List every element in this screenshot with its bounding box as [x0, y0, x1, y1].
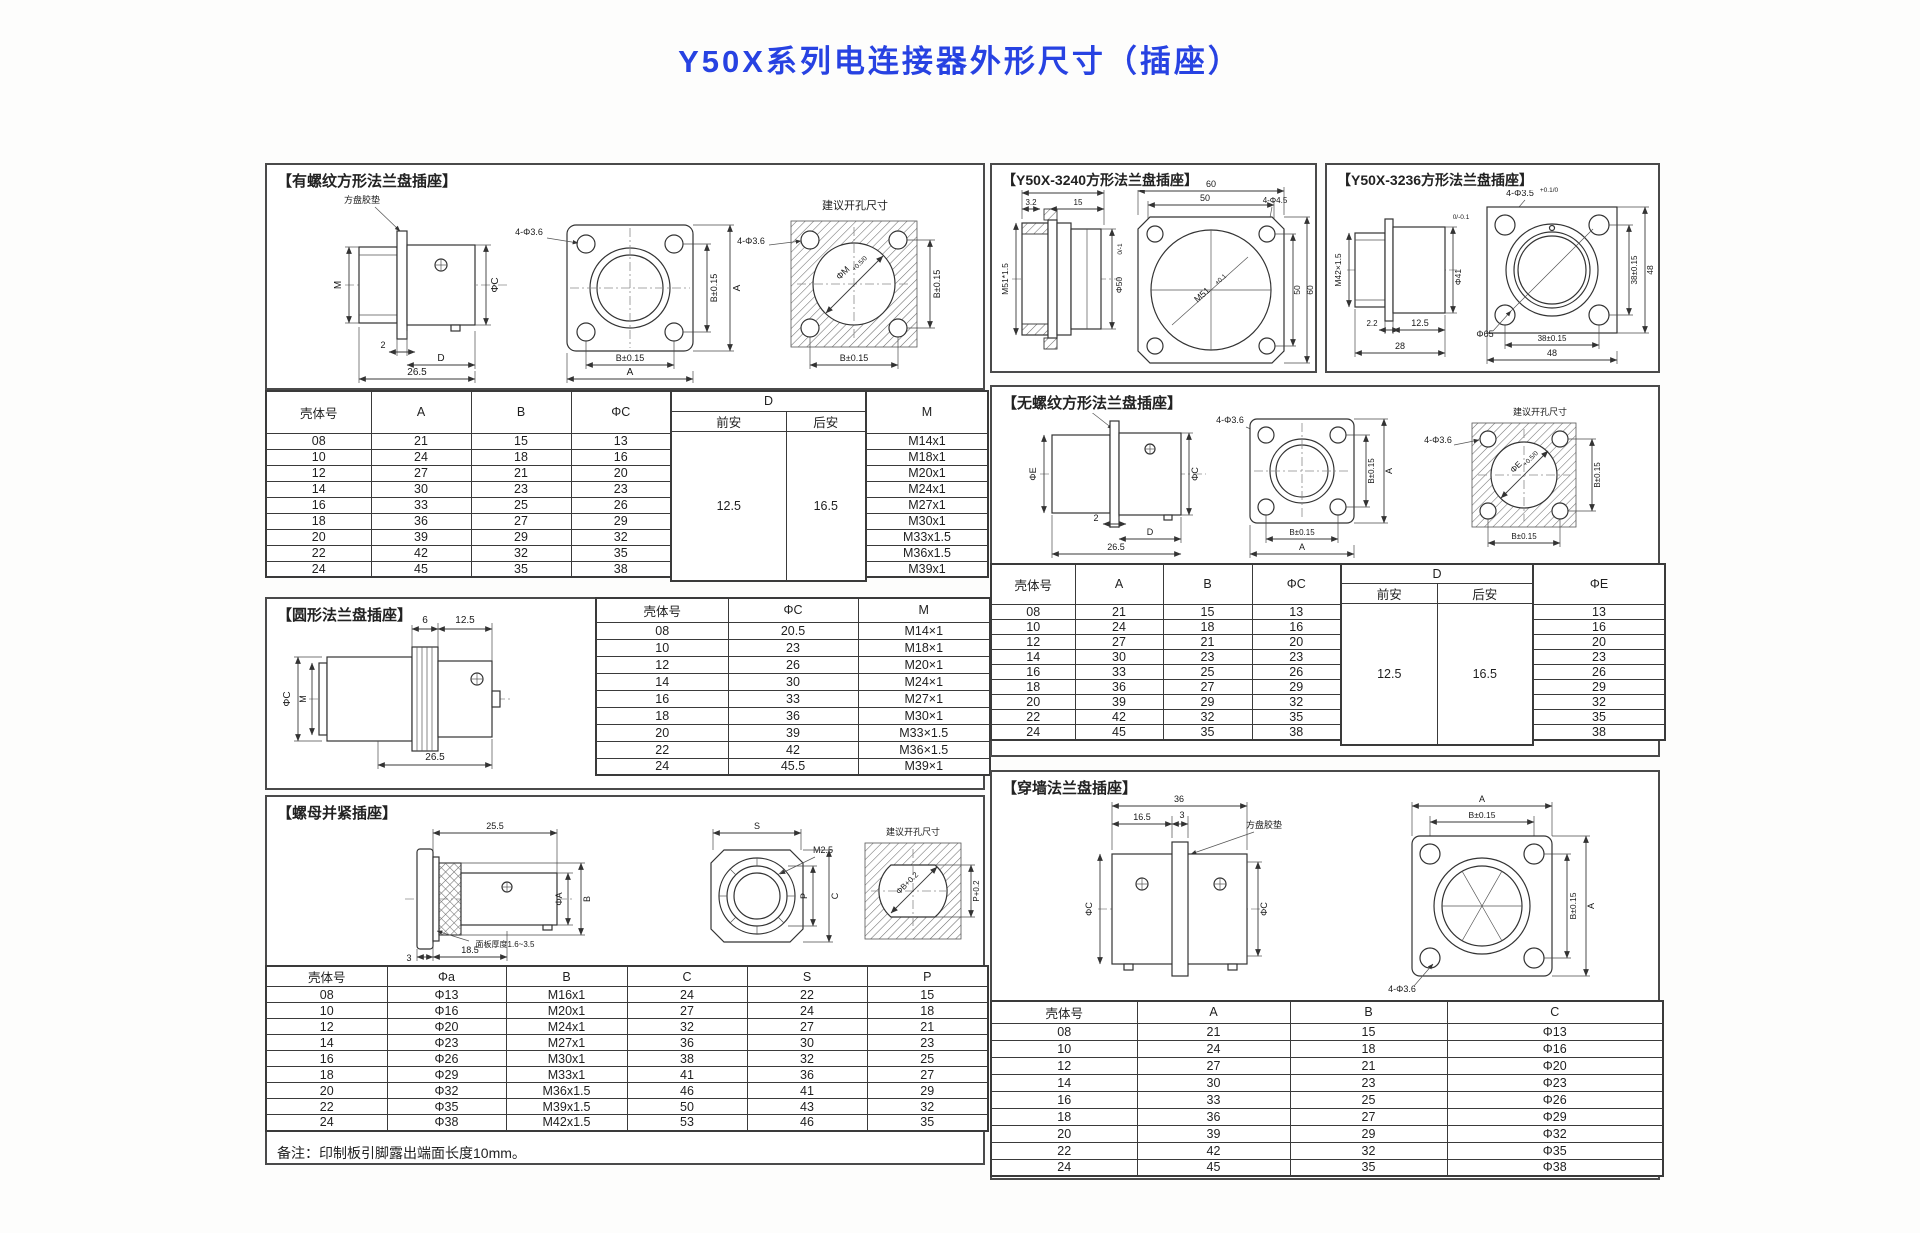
table-row: 24453538 — [266, 561, 671, 577]
dim-36: 36 — [1174, 794, 1184, 804]
table-cell: Φ32 — [387, 1083, 506, 1099]
threaded-drawing: 方盘胶垫 M ΦC 2 D 26.5 — [267, 165, 983, 388]
dim-28: 28 — [1395, 341, 1405, 351]
table-cell: M16x1 — [506, 987, 627, 1003]
table-cell: Φ26 — [1447, 1091, 1663, 1108]
table-cell: 22 — [747, 987, 867, 1003]
table-cell: 33 — [1137, 1091, 1290, 1108]
dim-a-top: A — [1479, 794, 1485, 804]
table-row: 08211513 — [991, 604, 1341, 619]
table-cell: 16 — [1252, 619, 1341, 634]
column-header: D — [671, 391, 866, 411]
dim-b2: B±0.15 — [616, 353, 644, 363]
table-cell: 23 — [867, 1035, 988, 1051]
table-cell: 32 — [867, 1099, 988, 1115]
table-cell: 10 — [596, 639, 728, 656]
table-row: 18362729 — [266, 513, 671, 529]
dim-m: M — [333, 281, 344, 289]
table-cell: 21 — [471, 465, 571, 481]
table-row: 20 — [1533, 634, 1665, 649]
table-row: 16332526 — [991, 664, 1341, 679]
dim-a: A — [732, 284, 743, 291]
dim-2: 2 — [1093, 513, 1098, 523]
table-cell: 22 — [991, 709, 1075, 724]
column-header: M — [858, 598, 990, 622]
throughwall-front-view: A B±0.15 4-Φ3.6 B±0.15 A — [1388, 794, 1596, 994]
dim-c: C — [830, 892, 840, 899]
table-cell: 24 — [371, 449, 471, 465]
dim-6: 6 — [422, 615, 428, 626]
table-cell: M33x1.5 — [866, 529, 988, 545]
table-cell: 23 — [571, 481, 671, 497]
table-cell: 24 — [991, 1159, 1137, 1176]
table-cell: 32 — [1290, 1142, 1447, 1159]
table-cell: M36x1.5 — [866, 545, 988, 561]
table-row: 13 — [1533, 604, 1665, 619]
table-cell: 30 — [1075, 649, 1163, 664]
unthreaded-table: 壳体号 A B ΦC 08211513102418161227212014302… — [990, 563, 1662, 746]
table-row: 14302323 — [266, 481, 671, 497]
dim-26-5: 26.5 — [1107, 542, 1125, 552]
table-cell: 16 — [266, 1051, 387, 1067]
table-cell: 38 — [571, 561, 671, 577]
table-row: 1633M27×1 — [596, 690, 990, 707]
table-cell: 41 — [747, 1083, 867, 1099]
table-cell: 15 — [471, 433, 571, 449]
panel-circular-flange: 【圆形法兰盘插座】 6 12.5 ΦC M 26.5 壳体号 — [265, 597, 985, 790]
panel-title: 【螺母并紧插座】 — [275, 802, 399, 823]
panel-y50x-3236: 【Y50X-3236方形法兰盘插座】 M42×1.5 Φ41 0/-0.1 2.… — [1325, 163, 1660, 373]
column-header: ΦE — [1533, 564, 1665, 604]
table-cell: 13 — [1252, 604, 1341, 619]
dim-12-5: 12.5 — [455, 615, 475, 626]
dim-a2: A — [627, 367, 634, 378]
y3236-drawing: M42×1.5 Φ41 0/-0.1 2.2 12.5 28 4-Φ3.5 +0… — [1327, 165, 1658, 371]
table-cell: 39 — [1075, 694, 1163, 709]
table-cell: M30x1 — [866, 513, 988, 529]
dim-15: 15 — [1074, 198, 1083, 207]
table-cell: 12 — [596, 656, 728, 673]
table-cell: 16.5 — [1437, 603, 1533, 745]
table-cell: 29 — [867, 1083, 988, 1099]
table-cell: Φ13 — [1447, 1023, 1663, 1040]
table-cell: 14 — [266, 481, 371, 497]
table-cell: M36x1.5 — [506, 1083, 627, 1099]
table-cell: 21 — [1075, 604, 1163, 619]
table-row: 10241816 — [991, 619, 1341, 634]
table-cell: Φ35 — [1447, 1142, 1663, 1159]
table-cell: 32 — [571, 529, 671, 545]
table-cell: 53 — [627, 1115, 747, 1131]
circular-drawing: 6 12.5 ΦC M 26.5 — [267, 599, 591, 788]
table-cell: 18 — [471, 449, 571, 465]
table-cell: 21 — [1290, 1057, 1447, 1074]
table-cell: 35 — [571, 545, 671, 561]
dim-p02: P+0.2 — [972, 880, 981, 902]
table-row: M39x1 — [866, 561, 988, 577]
table-cell: Φ26 — [387, 1051, 506, 1067]
table-row: 12Φ20M24x1322721 — [266, 1019, 988, 1035]
panel-unthreaded-square-flange: 【无螺纹方形法兰盘插座】 方盘胶垫 ΦE ΦC 2 D 26.5 — [990, 385, 1660, 757]
table-cell: 20 — [266, 1083, 387, 1099]
table-cell: 24 — [991, 724, 1075, 740]
table-cell: 29 — [471, 529, 571, 545]
table-row: 26 — [1533, 664, 1665, 679]
table-cell: Φ38 — [387, 1115, 506, 1131]
column-header: Φa — [387, 966, 506, 987]
table-cell: 27 — [747, 1019, 867, 1035]
dim-phiC-right: ΦC — [1259, 902, 1269, 916]
table-row: 20392932 — [266, 529, 671, 545]
table-cell: 26 — [1252, 664, 1341, 679]
unthreaded-hole-suggestion: 建议开孔尺寸 4-Φ3.6 ΦE +0.5/0 B±0.15 B±0.15 — [1424, 406, 1602, 547]
table-cell: 16 — [991, 664, 1075, 679]
suggest-label: 建议开孔尺寸 — [822, 198, 888, 212]
column-header: 壳体号 — [266, 966, 387, 987]
table-cell: M20x1 — [506, 1003, 627, 1019]
dim-16-5: 16.5 — [1133, 812, 1151, 822]
table-cell: 45 — [1075, 724, 1163, 740]
table-cell: M14×1 — [858, 622, 990, 639]
table-cell: Φ38 — [1447, 1159, 1663, 1176]
table-row: M27x1 — [866, 497, 988, 513]
table-cell: 25 — [471, 497, 571, 513]
table-cell: 16 — [596, 690, 728, 707]
table-row: 24Φ38M42x1.5534635 — [266, 1115, 988, 1131]
table-cell: M18×1 — [858, 639, 990, 656]
dim-phi65: Φ65 — [1476, 329, 1493, 339]
table-cell: 33 — [371, 497, 471, 513]
table-cell: M27x1 — [506, 1035, 627, 1051]
table-cell: 36 — [1137, 1108, 1290, 1125]
table-cell: 46 — [747, 1115, 867, 1131]
table-row: 082115Φ13 — [991, 1023, 1663, 1040]
table-row: M33x1.5 — [866, 529, 988, 545]
dim-phi50: Φ50 — [1114, 277, 1124, 294]
table-cell: Φ23 — [387, 1035, 506, 1051]
table-cell: 23 — [728, 639, 858, 656]
unthreaded-drawing: 方盘胶垫 ΦE ΦC 2 D 26.5 4-Φ3.6 — [992, 391, 1658, 563]
table-cell: 27 — [371, 465, 471, 481]
table-cell: 27 — [1137, 1057, 1290, 1074]
column-header: A — [1075, 564, 1163, 604]
table-cell: M30×1 — [858, 707, 990, 724]
table-cell: 46 — [627, 1083, 747, 1099]
table-cell: 42 — [371, 545, 471, 561]
suggest-label: 建议开孔尺寸 — [886, 826, 940, 837]
table-cell: Φ16 — [1447, 1040, 1663, 1057]
nut-table: 壳体号ΦaBCSP 08Φ13M16x124221510Φ16M20x12724… — [265, 965, 989, 1132]
table-cell: 42 — [1075, 709, 1163, 724]
table-cell: 10 — [991, 619, 1075, 634]
table-cell: 10 — [266, 449, 371, 465]
table-cell: Φ13 — [387, 987, 506, 1003]
column-header: ΦC — [571, 391, 671, 433]
unthreaded-table-main: 壳体号 A B ΦC 08211513102418161227212014302… — [990, 563, 1342, 741]
table-cell: 39 — [1137, 1125, 1290, 1142]
table-cell: 32 — [1163, 709, 1252, 724]
table-cell: 08 — [266, 987, 387, 1003]
table-row: M14x1 — [866, 433, 988, 449]
table-row: 38 — [1533, 724, 1665, 740]
table-cell: 18 — [266, 513, 371, 529]
table-cell: 41 — [627, 1067, 747, 1083]
table-cell: 38 — [1533, 724, 1665, 740]
column-header: B — [1290, 1001, 1447, 1023]
threaded-table-main: 壳体号 A B ΦC 08211513102418161227212014302… — [265, 390, 672, 578]
table-cell: 16 — [991, 1091, 1137, 1108]
panel-title: 【穿墙法兰盘插座】 — [1000, 777, 1139, 798]
table-cell: 26 — [1533, 664, 1665, 679]
panel-threaded-square-flange: 【有螺纹方形法兰盘插座】 方盘胶垫 M ΦC 2 D 26. — [265, 163, 985, 390]
dim-p: P — [799, 893, 809, 899]
table-row: 29 — [1533, 679, 1665, 694]
circular-side-view: 6 12.5 ΦC M 26.5 — [282, 615, 512, 769]
table-row: 12272120 — [266, 465, 671, 481]
table-cell: 18 — [266, 1067, 387, 1083]
y3240-drawing: 32 3.2 15 M51*1.5 Φ50 0/-1 60 — [992, 165, 1315, 371]
table-row: 18362729 — [991, 679, 1341, 694]
table-row: 22423235 — [991, 709, 1341, 724]
dim-38b2: 38±0.15 — [1538, 334, 1567, 343]
column-header: ΦC — [728, 598, 858, 622]
table-cell: 08 — [596, 622, 728, 639]
column-header: A — [1137, 1001, 1290, 1023]
nut-side-view: 25.5 ΦA B 面板厚度1.6~3.5 3 18.5 — [405, 821, 592, 963]
table-cell: 20 — [1533, 634, 1665, 649]
table-cell: 35 — [867, 1115, 988, 1131]
table-row: 1836M30×1 — [596, 707, 990, 724]
table-cell: 30 — [747, 1035, 867, 1051]
dim-50: 50 — [1200, 193, 1210, 203]
table-cell: 15 — [1163, 604, 1252, 619]
dim-25-5: 25.5 — [486, 821, 504, 831]
y3236-side-view: M42×1.5 Φ41 0/-0.1 2.2 12.5 28 — [1333, 214, 1470, 357]
dim-3: 3 — [406, 953, 411, 963]
dim-48b: 48 — [1547, 348, 1557, 358]
table-cell: 35 — [471, 561, 571, 577]
table-cell: 24 — [596, 758, 728, 775]
dim-b4: B±0.15 — [840, 353, 868, 363]
table-cell: 12.5 — [1341, 603, 1437, 745]
table-row: 22423235 — [266, 545, 671, 561]
dim-d: D — [1147, 527, 1154, 537]
table-cell: 18 — [1290, 1040, 1447, 1057]
column-header: B — [471, 391, 571, 433]
dim-2: 2 — [380, 340, 385, 350]
dim-4-holes: 4-Φ3.6 — [1216, 415, 1244, 425]
dim-m42: M42×1.5 — [1333, 253, 1343, 287]
table-cell: 38 — [1252, 724, 1341, 740]
table-row: 16332526 — [266, 497, 671, 513]
table-cell: 42 — [728, 741, 858, 758]
panel-title: 【圆形法兰盘插座】 — [275, 604, 414, 625]
dim-phi41-tol: 0/-0.1 — [1453, 214, 1470, 221]
dim-50b: 50 — [1292, 285, 1302, 295]
table-cell: M20x1 — [866, 465, 988, 481]
gasket-label: 方盘胶垫 — [344, 194, 380, 205]
table-row: 12272120 — [991, 634, 1341, 649]
dim-b-right: B±0.15 — [1568, 892, 1578, 919]
column-header: B — [1163, 564, 1252, 604]
dim-4-holes-tol: +0.1/0 — [1540, 187, 1559, 194]
unthreaded-table-e: ΦE 131620232629323538 — [1532, 563, 1666, 741]
unthreaded-side-view: 方盘胶垫 ΦE ΦC 2 D 26.5 — [1028, 398, 1206, 558]
table-cell: 25 — [1290, 1091, 1447, 1108]
table-cell: 45.5 — [728, 758, 858, 775]
table-cell: 15 — [1290, 1023, 1447, 1040]
column-header: C — [1447, 1001, 1663, 1023]
column-header: 前安 — [671, 411, 786, 431]
table-cell: M24x1 — [506, 1019, 627, 1035]
table-cell: Φ29 — [387, 1067, 506, 1083]
column-header: 壳体号 — [991, 1001, 1137, 1023]
table-row: 20392932 — [991, 694, 1341, 709]
dim-a-right: A — [1586, 903, 1596, 909]
dim-phiC: ΦC — [490, 277, 501, 292]
table-cell: 25 — [867, 1051, 988, 1067]
table-cell: 27 — [1075, 634, 1163, 649]
table-cell: 33 — [728, 690, 858, 707]
dim-a: A — [1384, 468, 1394, 474]
table-row: 102418Φ16 — [991, 1040, 1663, 1057]
column-header: 壳体号 — [596, 598, 728, 622]
dim-12-5: 12.5 — [1411, 318, 1429, 328]
table-cell: 18 — [867, 1003, 988, 1019]
table-cell: 23 — [1290, 1074, 1447, 1091]
table-cell: 20 — [1252, 634, 1341, 649]
table-cell: 39 — [728, 724, 858, 741]
table-row: 14302323 — [991, 649, 1341, 664]
panel-nut-clamped: 【螺母并紧插座】 25.5 ΦA B 面板厚度1.6~3.5 3 — [265, 795, 985, 1165]
table-cell: 18 — [1163, 619, 1252, 634]
table-row: 1226M20×1 — [596, 656, 990, 673]
table-cell: 29 — [571, 513, 671, 529]
panel-y50x-3240: 【Y50X-3240方形法兰盘插座】 32 3.2 15 M51*1.5 Φ50 — [990, 163, 1317, 373]
column-header: C — [627, 966, 747, 987]
panel-thickness-label: 面板厚度1.6~3.5 — [476, 939, 535, 949]
table-row: 203929Φ32 — [991, 1125, 1663, 1142]
column-header: 壳体号 — [991, 564, 1075, 604]
throughwall-side-view: 36 16.5 3 方盘胶垫 ΦC ΦC — [1084, 794, 1282, 976]
table-cell: 35 — [1252, 709, 1341, 724]
dim-26-5: 26.5 — [425, 752, 445, 763]
table-cell: 50 — [627, 1099, 747, 1115]
table-cell: Φ20 — [1447, 1057, 1663, 1074]
table-row: 35 — [1533, 709, 1665, 724]
panel-title: 【Y50X-3240方形法兰盘插座】 — [1000, 170, 1200, 190]
table-cell: 36 — [747, 1067, 867, 1083]
table-cell: 22 — [266, 1099, 387, 1115]
dim-phi41: Φ41 — [1453, 269, 1463, 286]
table-cell: 29 — [1533, 679, 1665, 694]
table-cell: 38 — [627, 1051, 747, 1067]
table-cell: 14 — [991, 1074, 1137, 1091]
dim-m: M — [298, 695, 308, 703]
table-cell: 35 — [1163, 724, 1252, 740]
threaded-table-m: M M14x1M18x1M20x1M24x1M27x1M30x1M33x1.5M… — [865, 390, 989, 578]
table-cell: M20×1 — [858, 656, 990, 673]
table-row: 16 — [1533, 619, 1665, 634]
table-cell: M36×1.5 — [858, 741, 990, 758]
table-cell: 36 — [371, 513, 471, 529]
nut-front-view: S M2.5 P C — [711, 821, 840, 942]
table-cell: M24x1 — [866, 481, 988, 497]
dim-2-2: 2.2 — [1366, 319, 1378, 328]
table-row: 1023M18×1 — [596, 639, 990, 656]
table-cell: 08 — [266, 433, 371, 449]
table-cell: M27x1 — [866, 497, 988, 513]
column-header: 壳体号 — [266, 391, 371, 433]
table-cell: 14 — [266, 1035, 387, 1051]
dim-18-5: 18.5 — [461, 945, 479, 955]
table-cell: 29 — [1290, 1125, 1447, 1142]
table-cell: 27 — [471, 513, 571, 529]
table-cell: 10 — [991, 1040, 1137, 1057]
table-cell: 30 — [1137, 1074, 1290, 1091]
circular-table: 壳体号ΦCM 0820.5M14×11023M18×11226M20×11430… — [595, 597, 991, 776]
table-cell: 26 — [571, 497, 671, 513]
table-cell: 12 — [266, 465, 371, 481]
panel-title: 【Y50X-3236方形法兰盘插座】 — [1335, 170, 1535, 190]
dim-b2: B±0.15 — [1289, 528, 1315, 537]
table-row: 244535Φ38 — [991, 1159, 1663, 1176]
table-cell: 45 — [371, 561, 471, 577]
table-cell: M42x1.5 — [506, 1115, 627, 1131]
panel-through-wall-flange: 【穿墙法兰盘插座】 36 16.5 3 方盘胶垫 ΦC ΦC — [990, 770, 1660, 1180]
table-cell: 24 — [627, 987, 747, 1003]
column-header: B — [506, 966, 627, 987]
throughwall-drawing: 36 16.5 3 方盘胶垫 ΦC ΦC A B±0.15 — [992, 792, 1658, 997]
table-cell: 13 — [571, 433, 671, 449]
table-cell: M30x1 — [506, 1051, 627, 1067]
dim-m51-side: M51*1.5 — [1000, 263, 1010, 295]
dim-b4: B±0.15 — [1511, 532, 1537, 541]
table-cell: M24×1 — [858, 673, 990, 690]
table-cell: 21 — [1163, 634, 1252, 649]
table-cell: 18 — [991, 1108, 1137, 1125]
table-cell: 24 — [1137, 1040, 1290, 1057]
table-cell: 36 — [627, 1035, 747, 1051]
dim-phiE: ΦE — [1028, 467, 1038, 480]
dim-26-5: 26.5 — [407, 367, 427, 378]
table-cell: M39x1 — [866, 561, 988, 577]
table-row: 08Φ13M16x1242215 — [266, 987, 988, 1003]
dim-b-top: B±0.15 — [1469, 810, 1496, 820]
table-row: 2242M36×1.5 — [596, 741, 990, 758]
table-cell: 20 — [991, 1125, 1137, 1142]
table-row: M36x1.5 — [866, 545, 988, 561]
column-header: D — [1341, 564, 1533, 583]
dim-3: 3 — [1179, 810, 1184, 820]
table-cell: 43 — [747, 1099, 867, 1115]
table-cell: 20 — [266, 529, 371, 545]
nut-drawing: 25.5 ΦA B 面板厚度1.6~3.5 3 18.5 — [267, 821, 983, 965]
table-cell: 32 — [471, 545, 571, 561]
table-row: M20x1 — [866, 465, 988, 481]
column-header: M — [866, 391, 988, 433]
throughwall-table: 壳体号ABC 082115Φ13102418Φ16122721Φ20143023… — [990, 1000, 1664, 1177]
table-cell: Φ16 — [387, 1003, 506, 1019]
dim-b3: B±0.15 — [932, 270, 942, 298]
table-cell: 21 — [867, 1019, 988, 1035]
y3240-front-view: 60 50 4-Φ4.5 M51 +0.1 50 60 — [1138, 179, 1315, 363]
table-cell: Φ32 — [1447, 1125, 1663, 1142]
table-row: 163325Φ26 — [991, 1091, 1663, 1108]
suggest-label: 建议开孔尺寸 — [1513, 406, 1567, 417]
table-cell: 12 — [266, 1019, 387, 1035]
table-cell: 13 — [1533, 604, 1665, 619]
